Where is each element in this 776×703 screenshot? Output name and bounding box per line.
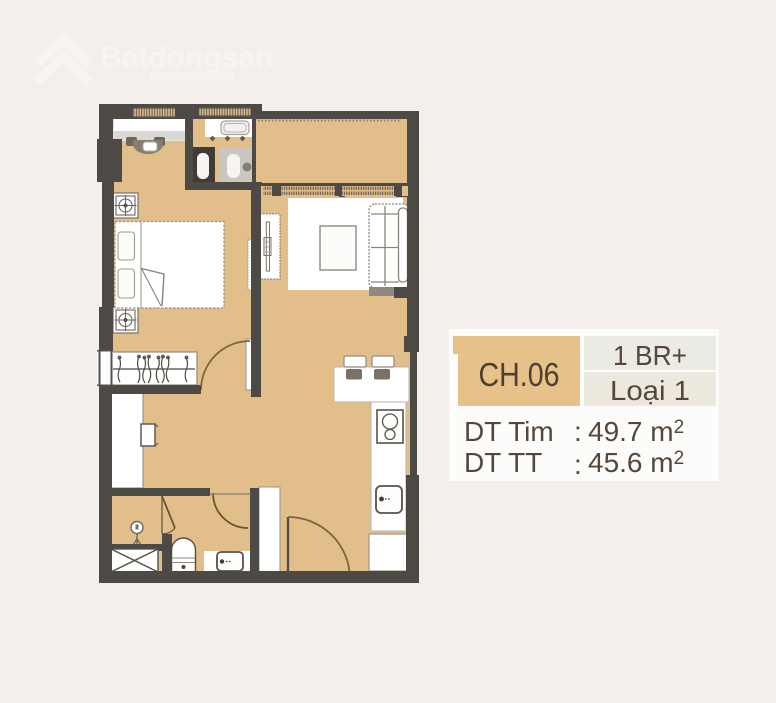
- svg-text:1 BR+: 1 BR+: [613, 340, 687, 371]
- svg-text::: :: [574, 416, 582, 447]
- svg-text:DT Tim: DT Tim: [464, 416, 554, 447]
- svg-text:CH.06: CH.06: [479, 356, 560, 393]
- svg-text:45.6 m2: 45.6 m2: [588, 447, 684, 478]
- svg-text:Loại 1: Loại 1: [610, 375, 690, 406]
- svg-text:Batdongsan: Batdongsan: [100, 41, 273, 74]
- svg-text:DT TT: DT TT: [464, 447, 542, 478]
- svg-text::: :: [574, 449, 582, 480]
- svg-text:49.7 m2: 49.7 m2: [588, 416, 684, 447]
